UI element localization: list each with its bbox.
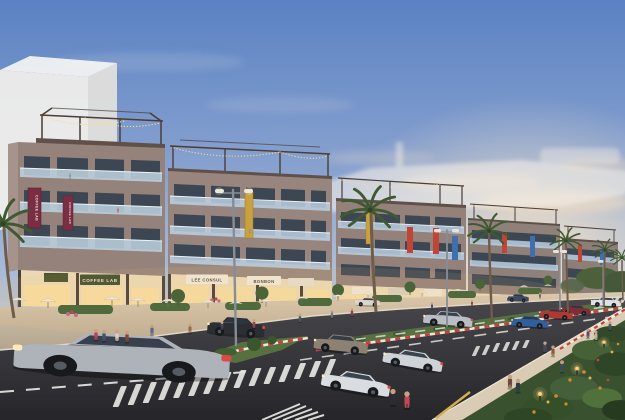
banner-text: COFFEE LAB (35, 195, 39, 221)
vertical-banner-blue (452, 236, 458, 260)
hedge-ball (268, 336, 277, 345)
vertical-banner-coffee-lab-2: COFFEE LAB (63, 196, 73, 230)
vertical-banner-red (407, 227, 413, 253)
vertical-banner-blue (530, 236, 535, 257)
bollard-lamp (533, 387, 547, 401)
vertical-banner-coffee-lab: COFFEE LAB (28, 188, 41, 228)
architectural-render: COFFEE LAB COFFEE LAB COFFEE LAB (0, 0, 625, 420)
vertical-banner-red (578, 245, 582, 262)
hedge-ball (247, 337, 261, 351)
bollard-lamp (598, 337, 609, 348)
bollard-lamp (571, 362, 584, 375)
vertical-banner-gold (245, 192, 253, 238)
banner-text: COFFEE LAB (68, 202, 72, 224)
render-canvas: COFFEE LAB COFFEE LAB COFFEE LAB (0, 0, 625, 420)
